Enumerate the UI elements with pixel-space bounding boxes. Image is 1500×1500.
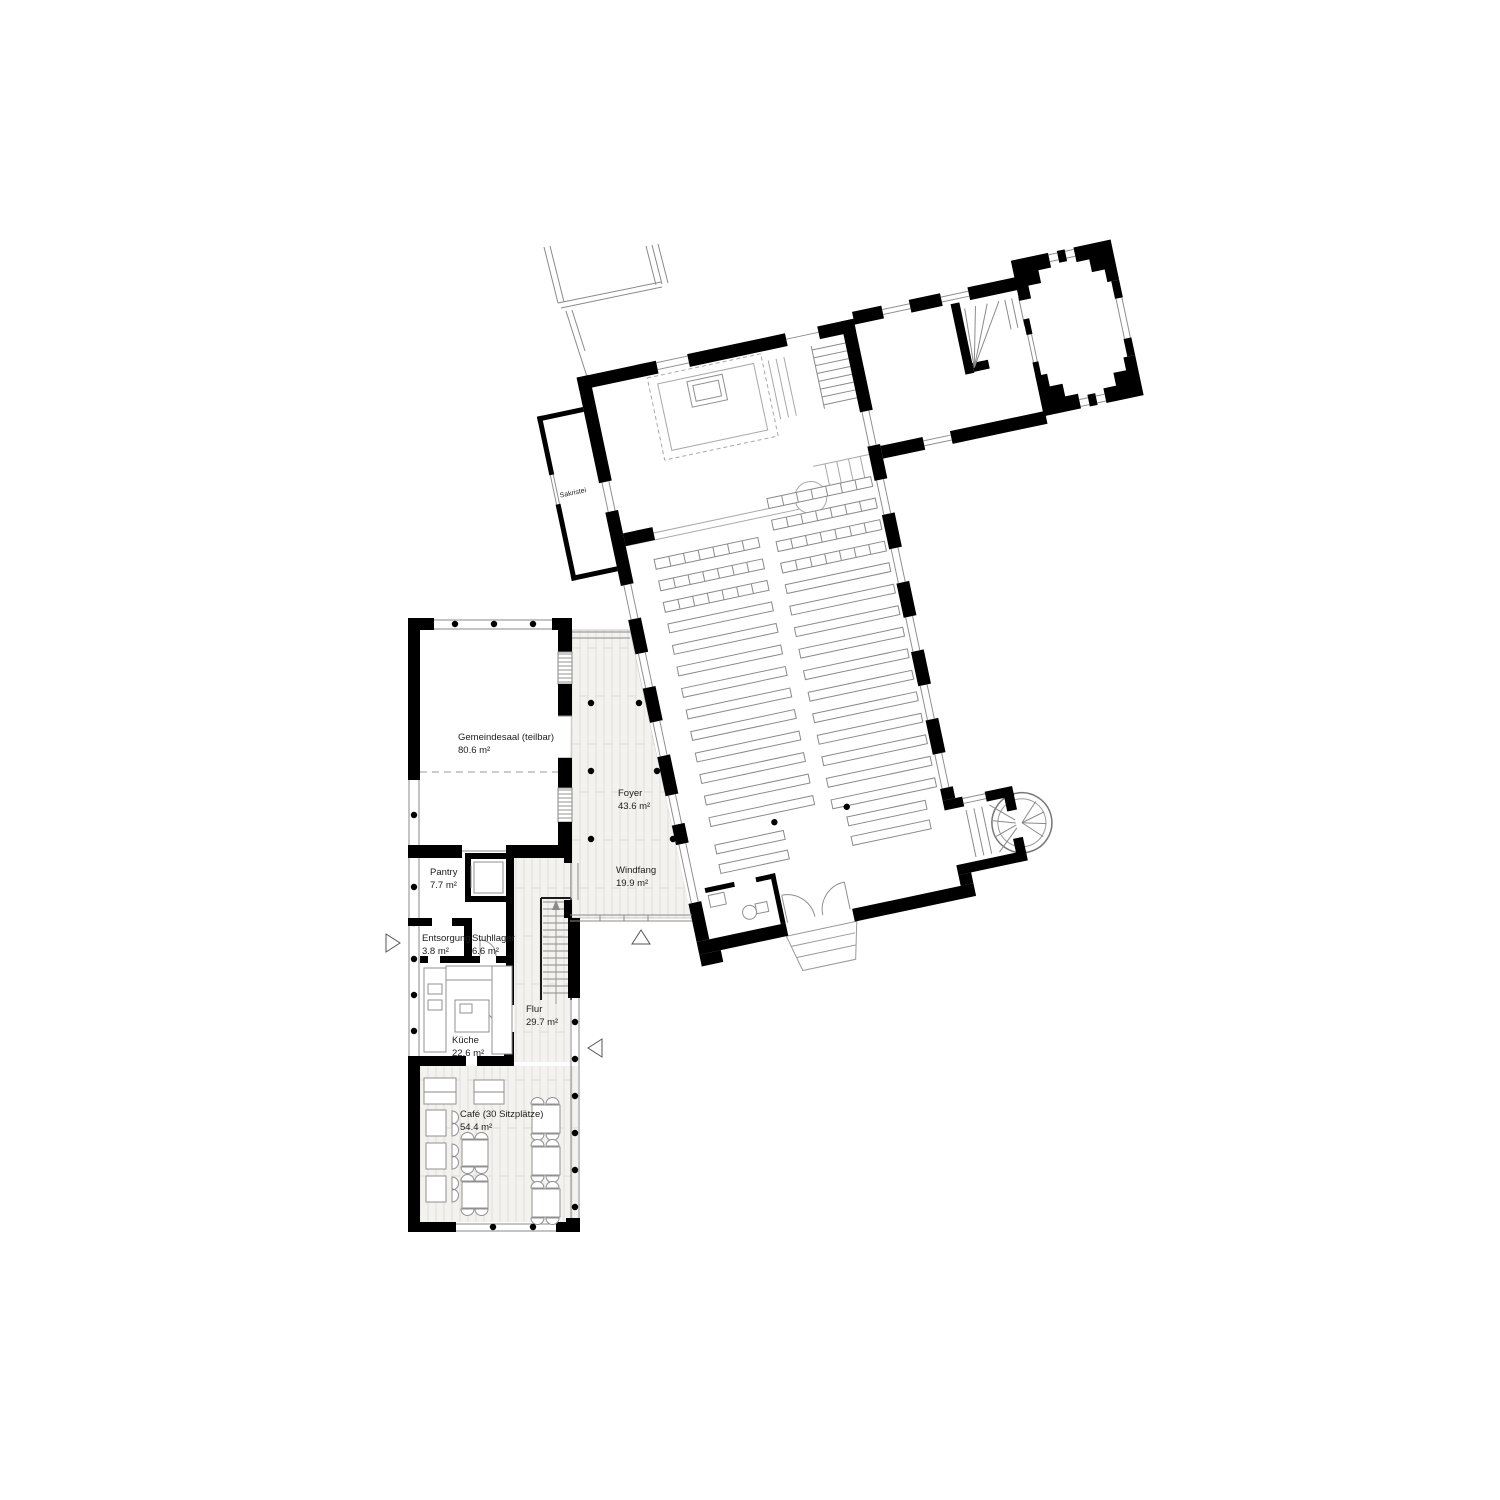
label-flur-area: 29.7 m²	[526, 1017, 558, 1028]
label-cafe-area: 54.4 m²	[460, 1122, 492, 1133]
label-flur-name: Flur	[526, 1004, 542, 1015]
label-windfang-name: Windfang	[616, 865, 656, 876]
label-entsorgung-name: Entsorgung	[422, 933, 471, 944]
label-gemeindesaal-name: Gemeindesaal (teilbar)	[458, 732, 554, 743]
label-windfang-area: 19.9 m²	[616, 878, 648, 889]
label-entsorgung-area: 3.8 m²	[422, 946, 449, 957]
label-gemeindesaal-area: 80.6 m²	[458, 745, 490, 756]
floor-plan-drawing: Sakristei	[0, 0, 1500, 1500]
label-stuhllager-area: 6.6 m²	[472, 946, 499, 957]
label-foyer-name: Foyer	[618, 788, 642, 799]
label-foyer-area: 43.6 m²	[618, 801, 650, 812]
label-pantry-name: Pantry	[430, 867, 458, 878]
elevator	[465, 853, 512, 902]
label-kueche-name: Küche	[452, 1035, 479, 1046]
label-cafe-name: Café (30 Sitzplätze)	[460, 1109, 543, 1120]
label-kueche-area: 22.6 m²	[452, 1048, 484, 1059]
label-stuhllager-name: Stuhllager	[472, 933, 515, 944]
label-pantry-area: 7.7 m²	[430, 880, 457, 891]
